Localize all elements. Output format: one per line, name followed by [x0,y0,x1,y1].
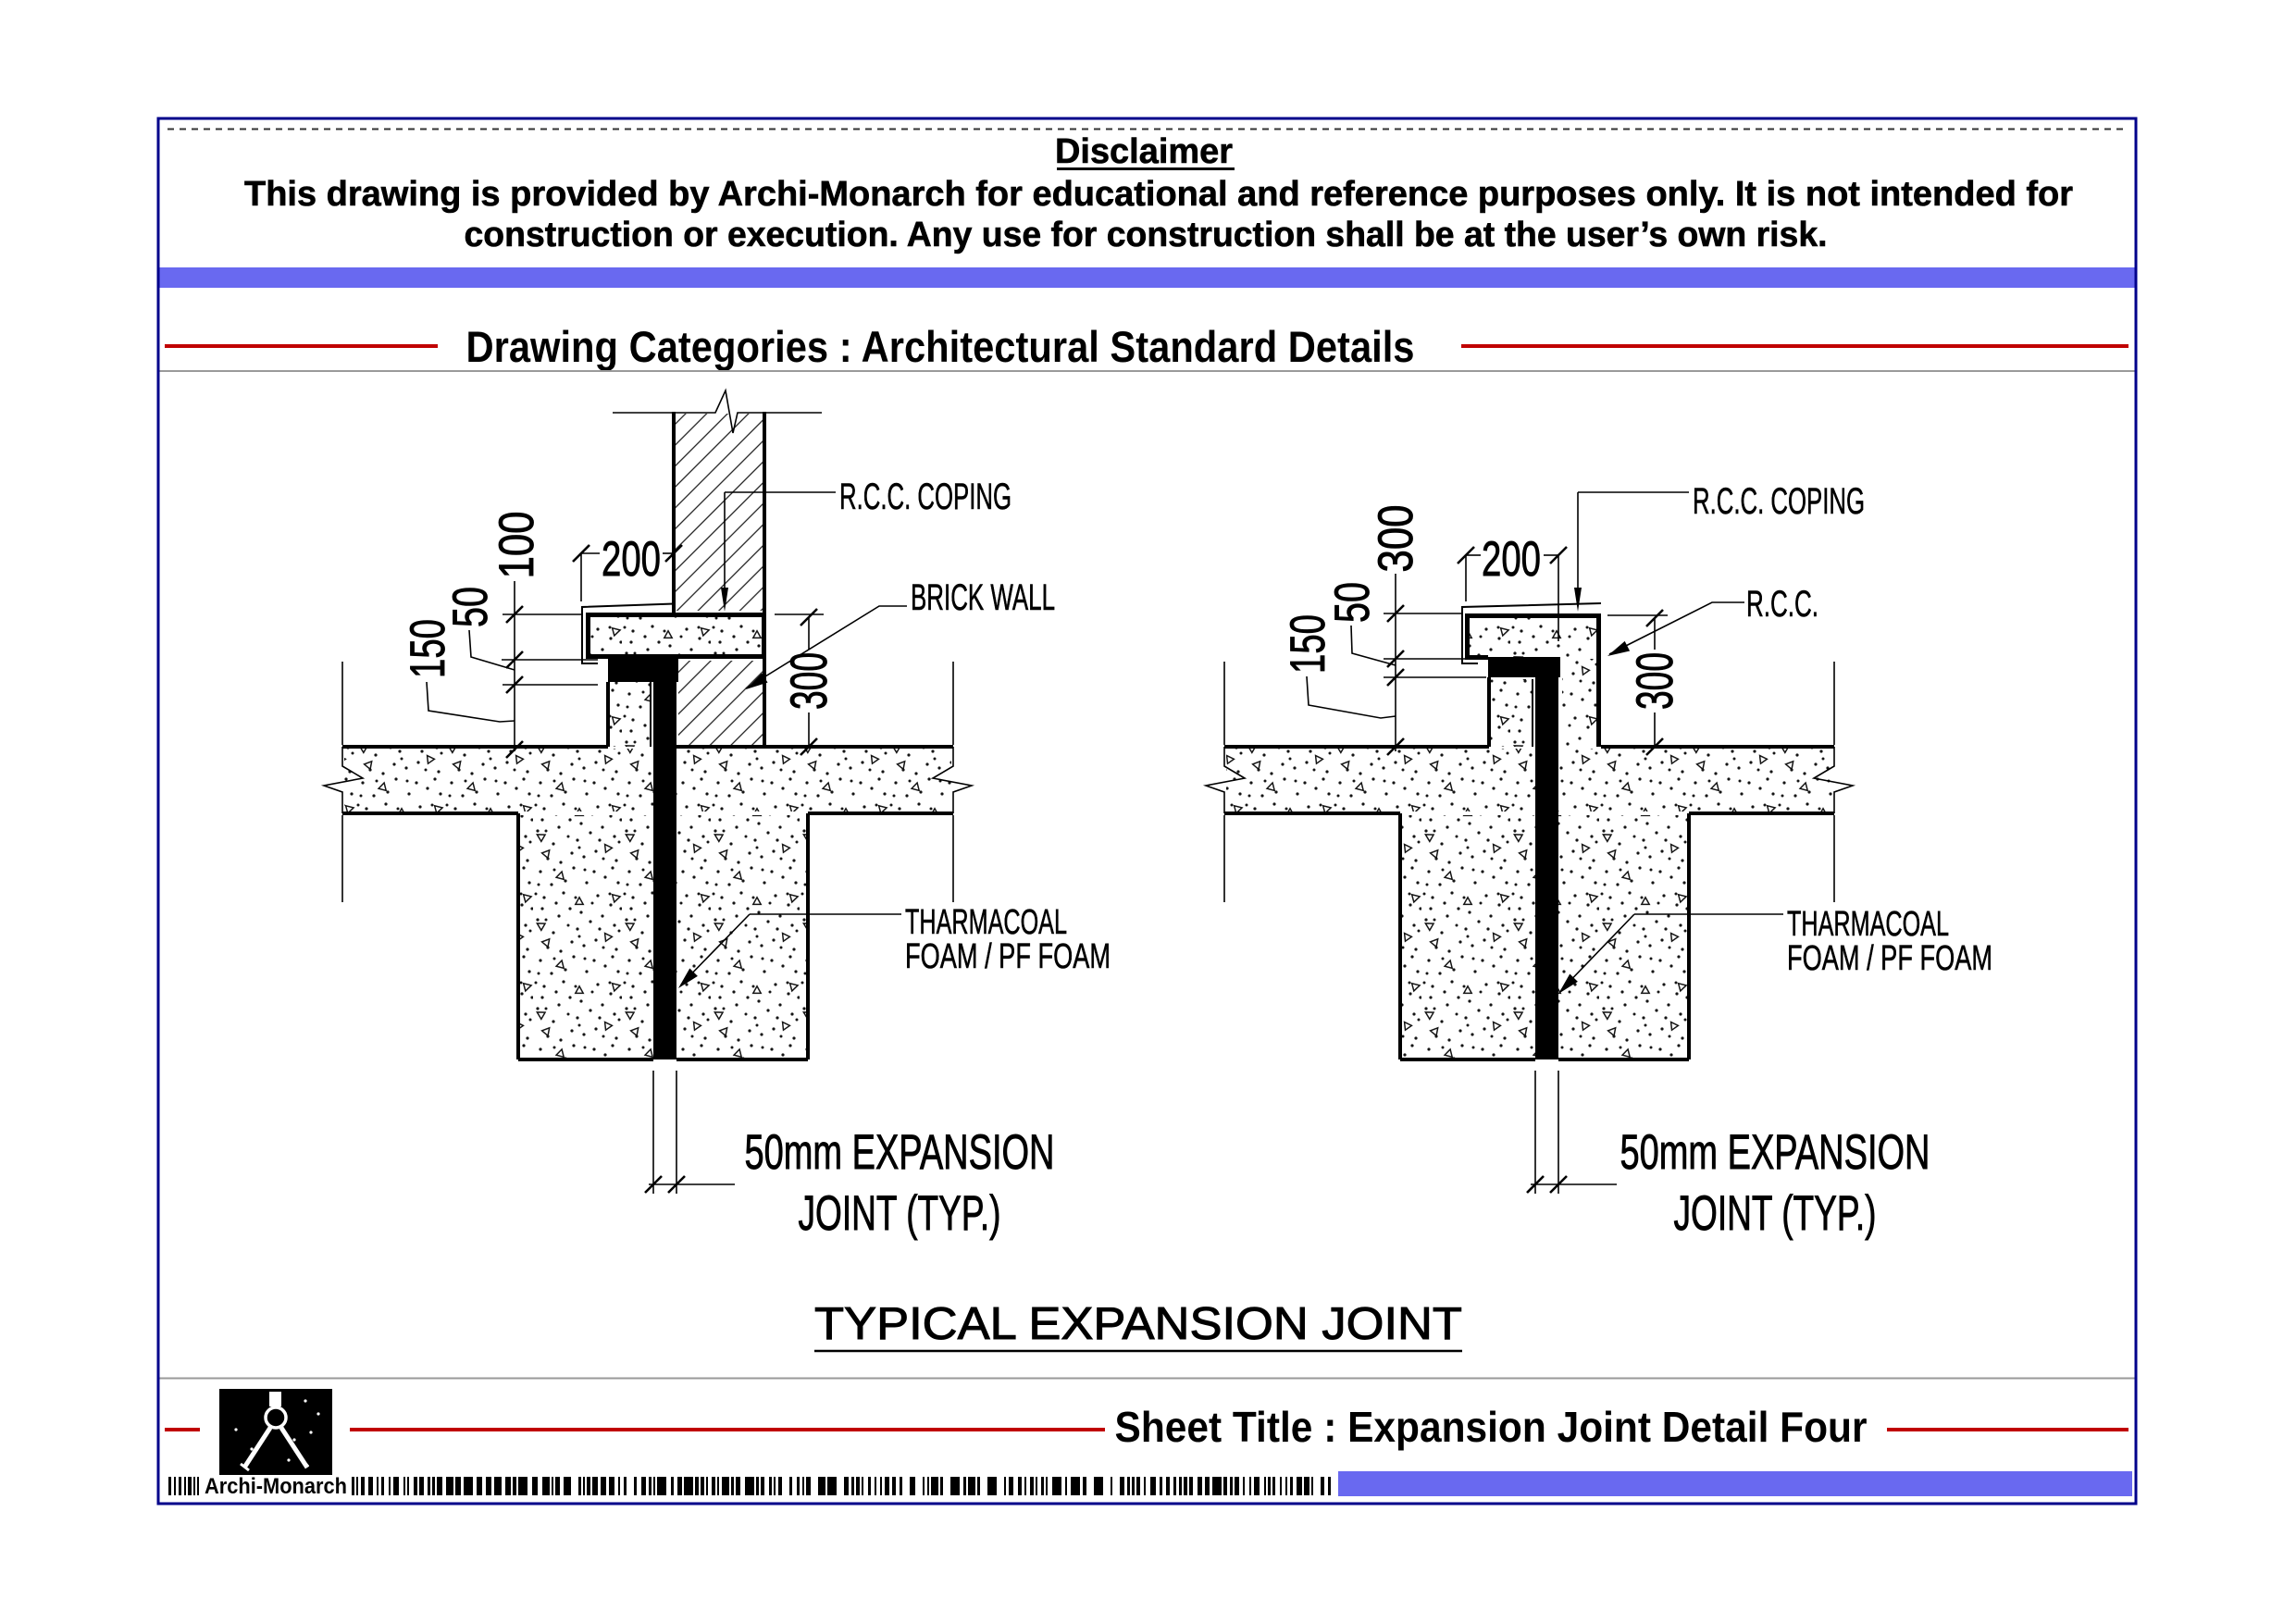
svg-text:THARMACOAL: THARMACOAL [905,903,1067,942]
svg-text:TYPICAL EXPANSION JOINT: TYPICAL EXPANSION JOINT [814,1299,1462,1349]
svg-text:200: 200 [602,532,661,587]
svg-text:150: 150 [401,619,455,678]
svg-text:THARMACOAL: THARMACOAL [1787,905,1949,944]
svg-text:150: 150 [1281,614,1335,674]
svg-text:JOINT (TYP.): JOINT (TYP.) [1674,1186,1877,1241]
svg-text:construction or execution. Any: construction or execution. Any use for c… [465,216,1828,254]
svg-text:200: 200 [1482,532,1541,587]
svg-text:BRICK WALL: BRICK WALL [911,577,1055,618]
svg-text:100: 100 [490,512,544,579]
svg-text:Drawing Categories : Architect: Drawing Categories : Architectural Stand… [466,322,1415,371]
svg-text:300: 300 [779,652,838,710]
svg-text:FOAM / PF FOAM: FOAM / PF FOAM [1787,939,1992,978]
svg-text:FOAM / PF FOAM: FOAM / PF FOAM [905,937,1111,976]
svg-text:Sheet Title : Expansion Joint: Sheet Title : Expansion Joint Detail Fou… [1115,1403,1868,1451]
svg-text:R.C.C. COPING: R.C.C. COPING [1693,481,1865,522]
svg-text:This drawing is provided by Ar: This drawing is provided by Archi-Monarc… [244,175,2073,214]
svg-text:50mm EXPANSION: 50mm EXPANSION [745,1125,1055,1180]
svg-text:JOINT (TYP.): JOINT (TYP.) [799,1186,1001,1241]
svg-text:Archi-Monarch: Archi-Monarch [205,1474,347,1499]
svg-text:Disclaimer: Disclaimer [1055,132,1233,171]
svg-text:R.C.C.: R.C.C. [1746,584,1818,625]
svg-text:50mm EXPANSION: 50mm EXPANSION [1620,1125,1930,1180]
svg-text:R.C.C. COPING: R.C.C. COPING [839,477,1011,517]
svg-text:300: 300 [1625,652,1683,710]
svg-text:300: 300 [1369,505,1423,573]
